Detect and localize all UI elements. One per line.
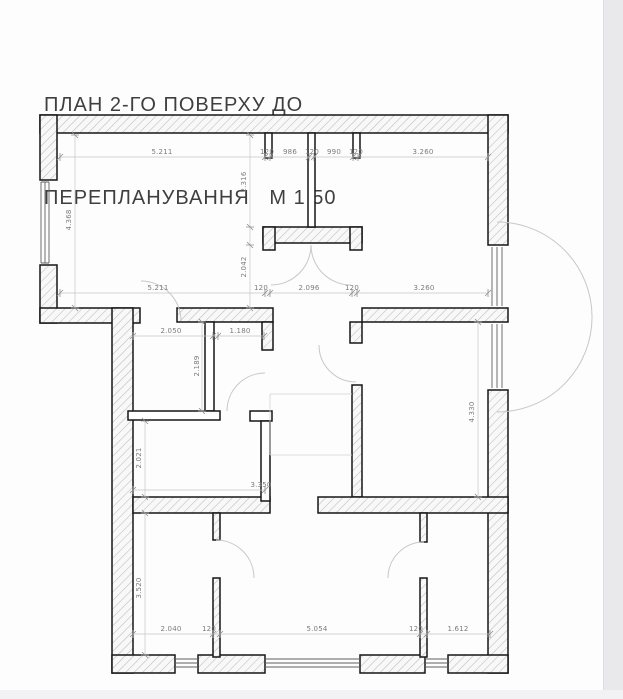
door-arc-bottom-left — [216, 540, 254, 578]
window-right-lower — [492, 324, 502, 388]
dim-label: 986 — [283, 148, 297, 156]
dim-label: 3.520 — [135, 577, 143, 598]
interior-bearing-walls — [133, 227, 508, 657]
wall-exterior-bottom-1 — [112, 655, 175, 673]
dim-label: 2.040 — [160, 625, 181, 633]
wall-mid-left — [177, 308, 273, 322]
dim-label: 2.021 — [135, 447, 143, 468]
wall-divider-bottom-left — [213, 578, 220, 657]
dim-label: 990 — [327, 148, 341, 156]
wall-stub-bedroom-door — [350, 322, 362, 343]
wall-exterior-right-lower — [488, 390, 508, 673]
wall-divider-bottom-right — [420, 578, 427, 657]
wall-stub-bottom-left — [213, 513, 220, 540]
wall-hall-bedroom — [352, 385, 362, 497]
dim-label: 120 — [349, 148, 363, 156]
dim-label: 120 — [254, 284, 268, 292]
window-left — [41, 182, 49, 263]
dim-label: 3.260 — [413, 284, 434, 292]
wall-wc-bottom — [128, 411, 220, 420]
wall-exterior-bottom-2 — [198, 655, 265, 673]
dim-label: 3.350 — [250, 481, 271, 489]
window-bottom-3 — [425, 659, 448, 667]
door-arc-bottom-right — [388, 542, 424, 578]
dim-label: 120 — [202, 625, 216, 633]
wall-vestibule-cap-left — [263, 227, 275, 250]
page-edge-right — [603, 0, 623, 699]
dim-label: 2.316 — [240, 171, 248, 192]
dim-label: 2.096 — [298, 284, 319, 292]
stair-shaft-outline — [270, 394, 352, 455]
window-bottom-1 — [175, 659, 198, 667]
wall-lower-mid-right — [318, 497, 508, 513]
dim-label: 120 — [305, 148, 319, 156]
wall-exterior-left-lower — [112, 308, 133, 673]
wall-exterior-left-upper — [40, 115, 57, 180]
wall-vestibule-cap-right — [350, 227, 362, 250]
windows — [41, 182, 502, 667]
dim-label: 4.330 — [468, 401, 476, 422]
wall-vestibule-front — [263, 227, 362, 243]
wall-jog — [250, 411, 272, 421]
dim-label: 3.260 — [412, 148, 433, 156]
dim-label: 120 — [345, 284, 359, 292]
wall-stub-bottom-right — [420, 513, 427, 542]
dim-label: 1.180 — [229, 327, 250, 335]
dim-label: 5.054 — [306, 625, 327, 633]
dim-label: 2.042 — [240, 256, 248, 277]
wall-exterior-bottom-3 — [360, 655, 425, 673]
dim-label: 5.211 — [147, 284, 168, 292]
window-right-upper — [492, 247, 502, 306]
wall-exterior-bottom-4 — [448, 655, 508, 673]
wall-exterior-right-upper — [488, 115, 508, 245]
dim-label: 4.368 — [65, 209, 73, 230]
wall-lower-mid-left — [133, 497, 270, 513]
door-arc-double-left — [271, 245, 311, 285]
window-bottom-2 — [265, 659, 360, 667]
dim-label: 120 — [409, 625, 423, 633]
dim-label: 2.189 — [193, 355, 201, 376]
door-arc-hall-bedroom — [319, 345, 356, 382]
dim-label: 5.211 — [151, 148, 172, 156]
dim-label: 2.050 — [160, 327, 181, 335]
floor-plan-drawing: 5.2111209861209901203.2602.3164.3682.042… — [0, 0, 623, 699]
door-arc-corridor — [227, 373, 265, 411]
dim-label: 1.612 — [447, 625, 468, 633]
door-arc-double-right — [311, 245, 351, 285]
dim-label: 120 — [260, 148, 274, 156]
wall-mid-right — [362, 308, 508, 322]
door-arc-balcony — [497, 222, 592, 412]
page-edge-bottom — [0, 690, 623, 699]
wall-exterior-top — [40, 115, 508, 133]
